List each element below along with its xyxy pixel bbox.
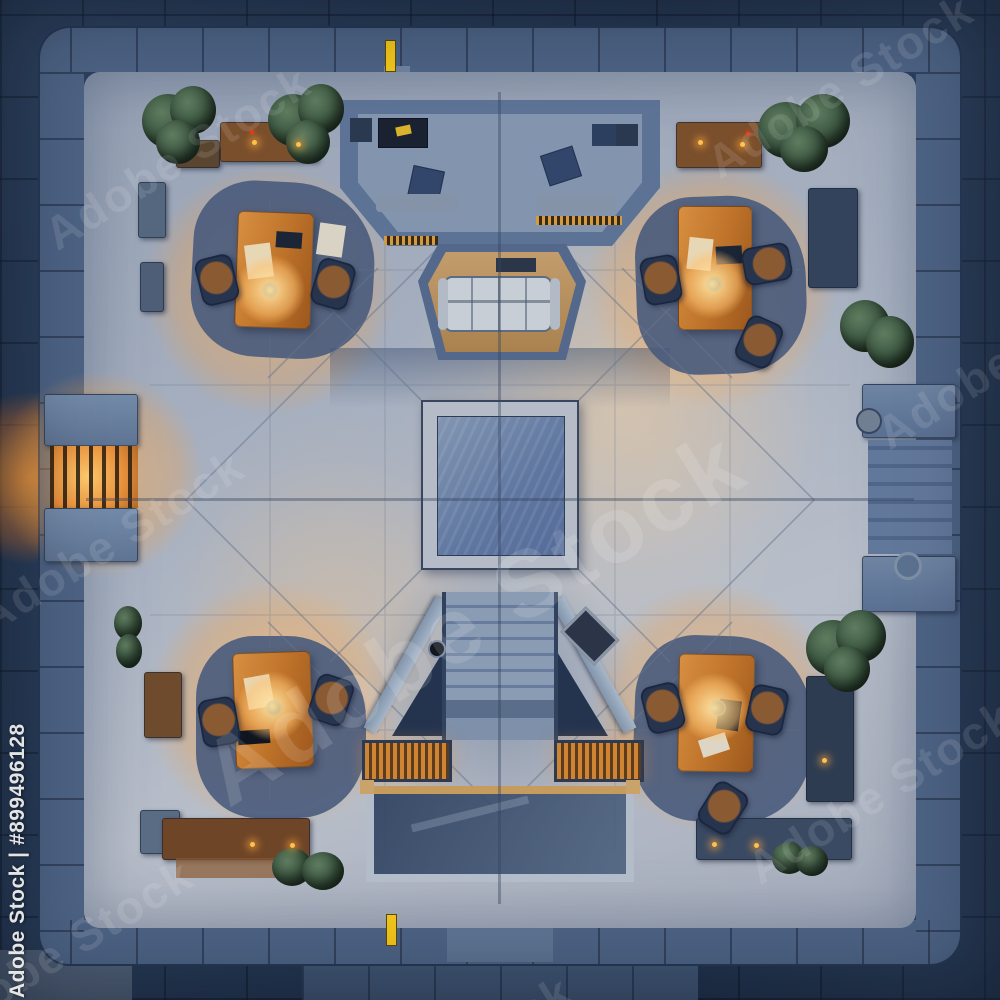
watermark-tile: Adobe Stock (0, 438, 254, 644)
watermark-asset-id: Adobe Stock | #899496128 (6, 723, 30, 998)
scene: Adobe Stock Adobe Stock Adobe Stock Adob… (0, 0, 1000, 1000)
watermark-tile-layer: Adobe Stock Adobe Stock Adobe Stock Adob… (0, 0, 1000, 1000)
watermark-tile: Adobe Stock (0, 847, 203, 1000)
watermark-tile-large: Adobe Stock (183, 408, 765, 827)
watermark-tile: Adobe Stock (896, 943, 1000, 1000)
watermark-tile: Adobe Stock (737, 688, 1000, 894)
watermark-tile: Adobe Stock (697, 0, 983, 189)
watermark-tile: Adobe Stock (35, 54, 321, 260)
watermark-tile: Adobe Stock (867, 254, 1000, 460)
watermark-tile: Adobe Stock (296, 964, 582, 1000)
